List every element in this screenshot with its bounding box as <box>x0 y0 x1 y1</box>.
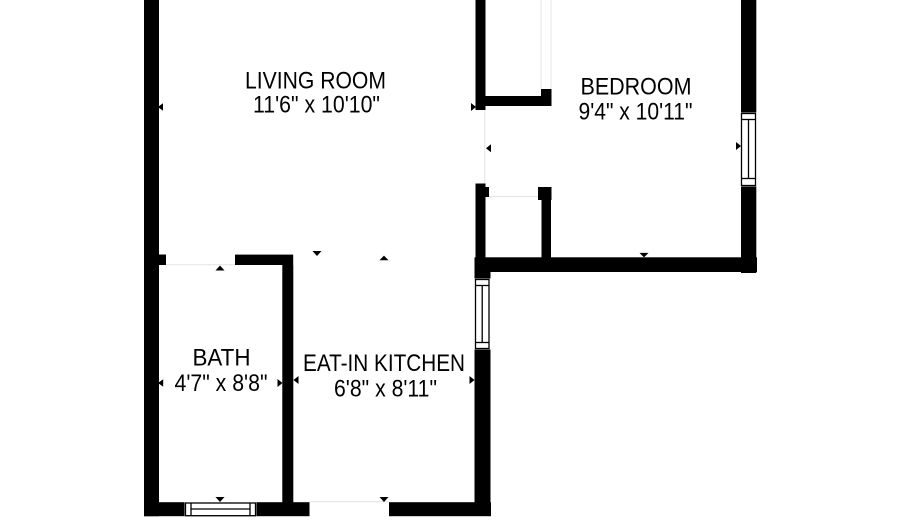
svg-text:6'8" x 8'11": 6'8" x 8'11" <box>334 376 437 403</box>
svg-text:LIVING ROOM: LIVING ROOM <box>245 67 386 94</box>
svg-text:11'6" x 10'10": 11'6" x 10'10" <box>253 91 380 118</box>
svg-text:EAT-IN KITCHEN: EAT-IN KITCHEN <box>303 350 465 377</box>
svg-text:BATH: BATH <box>193 344 251 371</box>
svg-text:9'4" x 10'11": 9'4" x 10'11" <box>579 98 693 125</box>
svg-text:BEDROOM: BEDROOM <box>581 73 692 100</box>
svg-text:4'7" x 8'8": 4'7" x 8'8" <box>175 370 268 397</box>
